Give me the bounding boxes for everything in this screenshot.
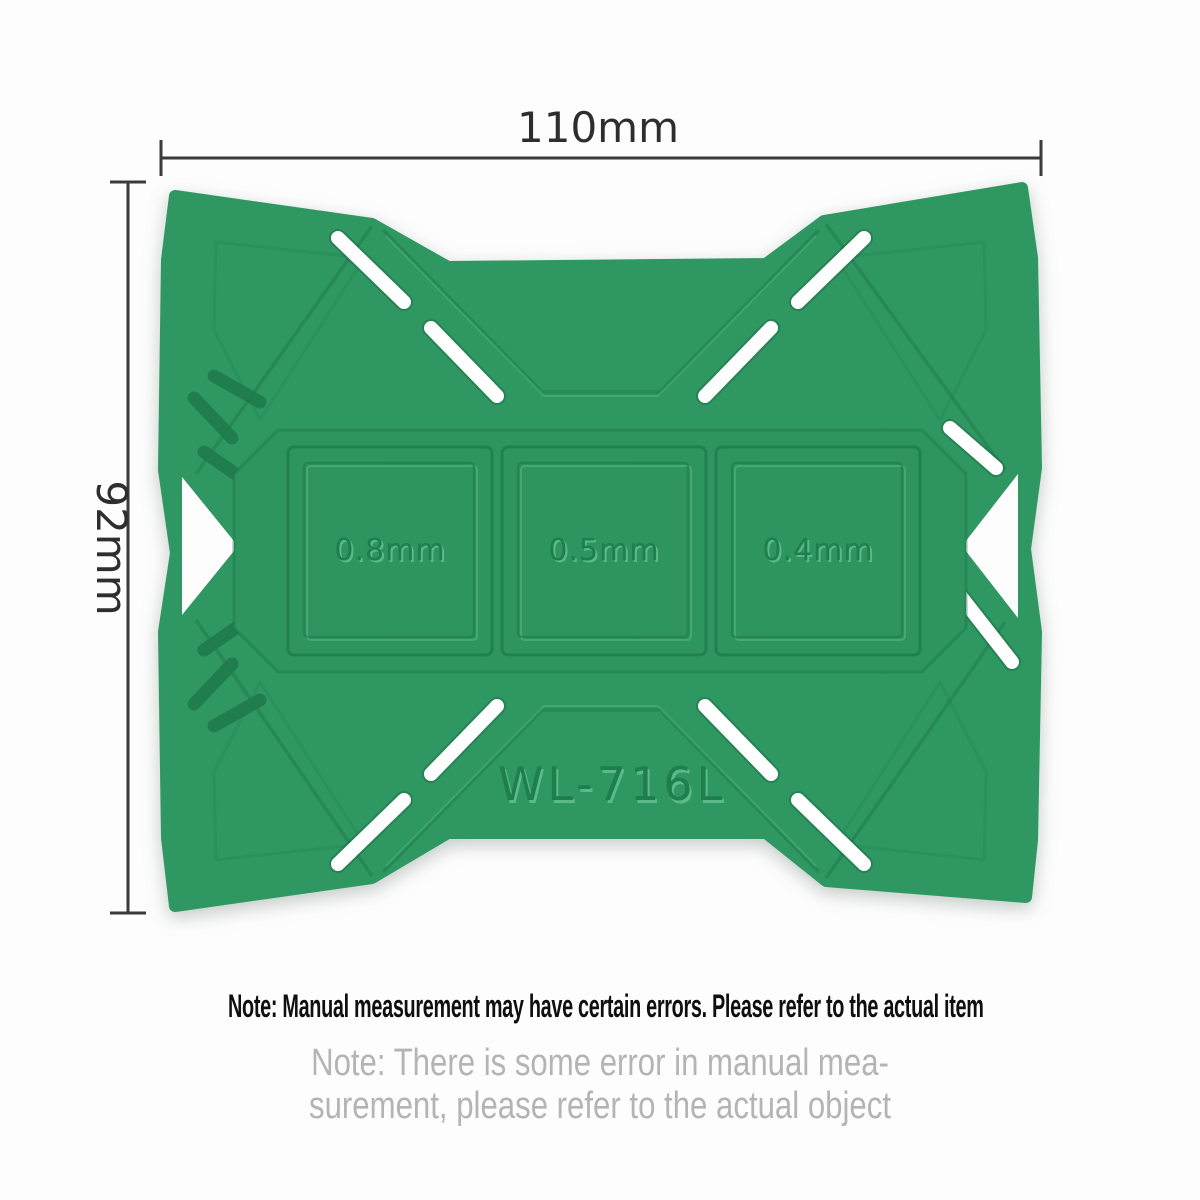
model-label: WL-716L WL-716L — [498, 757, 728, 814]
slot-label-0.8mm: 0.8mm — [334, 533, 445, 568]
height-dimension-label: 92mm — [87, 480, 136, 615]
note-primary: Note: Manual measurement may have certai… — [228, 988, 972, 1025]
green-pad: 0.8mm 0.8mm 0.5mm 0.5mm 0.4mm 0.4mm WL-7… — [164, 188, 1036, 906]
slot-label-0.4mm: 0.4mm — [762, 533, 873, 568]
product-dimension-image: 0.8mm 0.8mm 0.5mm 0.5mm 0.4mm 0.4mm WL-7… — [0, 0, 1200, 1200]
note-secondary: Note: There is some error in manual mea-… — [108, 1042, 1092, 1129]
slot-label-0.5mm: 0.5mm — [548, 533, 659, 568]
width-dimension-label: 110mm — [517, 103, 679, 152]
model-label-text: WL-716L — [498, 757, 726, 811]
note-secondary-line2: surement, please refer to the actual obj… — [108, 1085, 1092, 1128]
thickness-labels: 0.8mm 0.8mm 0.5mm 0.5mm 0.4mm 0.4mm — [334, 533, 875, 570]
note-secondary-line1: Note: There is some error in manual mea- — [108, 1042, 1092, 1085]
